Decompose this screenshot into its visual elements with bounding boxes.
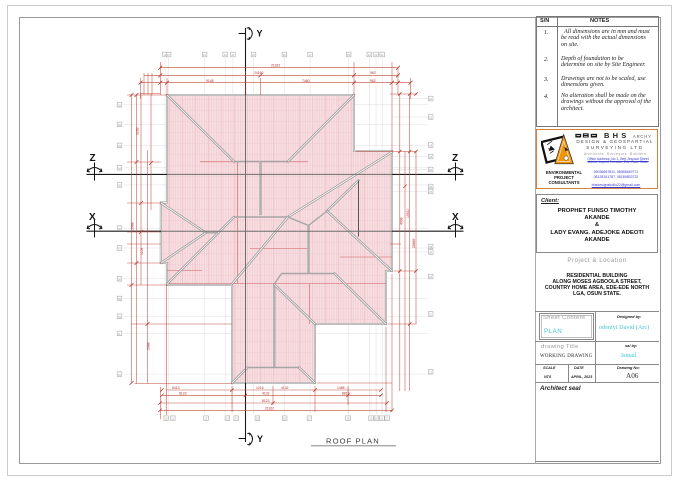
svg-text:03: 03 [429, 144, 432, 148]
svg-text:14: 14 [235, 417, 238, 421]
svg-text:19: 19 [369, 417, 372, 421]
svg-text:17: 17 [309, 53, 312, 57]
svg-text:24160: 24160 [254, 71, 264, 75]
svg-text:10: 10 [165, 417, 168, 421]
svg-text:Z: Z [90, 153, 96, 164]
svg-text:07: 07 [429, 190, 432, 194]
svg-text:06: 06 [118, 227, 121, 231]
svg-text:Z: Z [452, 153, 458, 164]
svg-text:7460: 7460 [302, 79, 310, 83]
svg-text:19: 19 [368, 53, 371, 57]
svg-text:21162: 21162 [271, 64, 280, 68]
svg-text:12: 12 [203, 53, 206, 57]
svg-text:21: 21 [380, 417, 383, 421]
svg-text:01: 01 [118, 103, 121, 107]
svg-text:4998: 4998 [399, 217, 403, 225]
svg-text:Y: Y [257, 29, 263, 39]
svg-text:15: 15 [256, 417, 259, 421]
svg-text:16: 16 [283, 53, 286, 57]
svg-text:05: 05 [429, 168, 432, 172]
svg-text:09: 09 [118, 297, 121, 301]
svg-text:17: 17 [308, 417, 311, 421]
svg-text:15: 15 [252, 53, 255, 57]
svg-text:1216: 1216 [256, 386, 264, 390]
svg-text:02: 02 [118, 123, 121, 127]
svg-text:1106: 1106 [140, 248, 144, 255]
svg-text:04: 04 [118, 167, 121, 171]
svg-text:21: 21 [381, 53, 384, 57]
svg-text:4132: 4132 [262, 391, 270, 395]
svg-text:13: 13 [226, 417, 229, 421]
svg-text:07: 07 [118, 247, 121, 251]
svg-text:06: 06 [429, 185, 432, 189]
svg-text:962: 962 [370, 79, 376, 83]
svg-text:28865: 28865 [412, 238, 416, 248]
svg-text:03: 03 [118, 144, 121, 148]
svg-text:ROOF PLAN: ROOF PLAN [326, 437, 380, 446]
svg-text:4132: 4132 [281, 386, 289, 390]
svg-text:02: 02 [429, 116, 432, 120]
svg-text:8813: 8813 [342, 391, 350, 395]
svg-text:11: 11 [429, 313, 432, 317]
svg-text:21162: 21162 [265, 406, 274, 410]
svg-text:20: 20 [374, 53, 377, 57]
svg-text:8123: 8123 [262, 399, 270, 403]
svg-text:12: 12 [118, 373, 121, 377]
svg-text:20: 20 [375, 417, 378, 421]
svg-text:2988: 2988 [147, 342, 151, 350]
svg-text:10: 10 [429, 275, 432, 279]
svg-text:08: 08 [118, 278, 121, 282]
svg-text:2988: 2988 [131, 222, 135, 230]
svg-text:18: 18 [346, 417, 349, 421]
svg-text:962: 962 [370, 71, 376, 75]
svg-text:18: 18 [347, 53, 350, 57]
svg-text:01: 01 [429, 97, 432, 101]
svg-text:05: 05 [118, 184, 121, 188]
svg-text:9148: 9148 [206, 79, 214, 83]
svg-text:04: 04 [429, 155, 432, 159]
svg-text:16: 16 [283, 417, 286, 421]
svg-text:6413: 6413 [172, 386, 180, 390]
svg-text:22: 22 [385, 417, 388, 421]
svg-text:8123: 8123 [179, 391, 187, 395]
svg-text:Y: Y [257, 434, 263, 444]
svg-text:14: 14 [231, 53, 234, 57]
svg-text:1488: 1488 [337, 386, 345, 390]
svg-text:09: 09 [429, 251, 432, 255]
svg-text:13: 13 [224, 53, 227, 57]
svg-text:12: 12 [204, 417, 207, 421]
svg-text:3283: 3283 [136, 127, 140, 135]
svg-text:11: 11 [118, 332, 121, 336]
svg-text:15610: 15610 [406, 208, 410, 218]
svg-text:10: 10 [118, 315, 121, 319]
svg-text:08: 08 [429, 245, 432, 249]
svg-text:12: 12 [429, 371, 432, 375]
